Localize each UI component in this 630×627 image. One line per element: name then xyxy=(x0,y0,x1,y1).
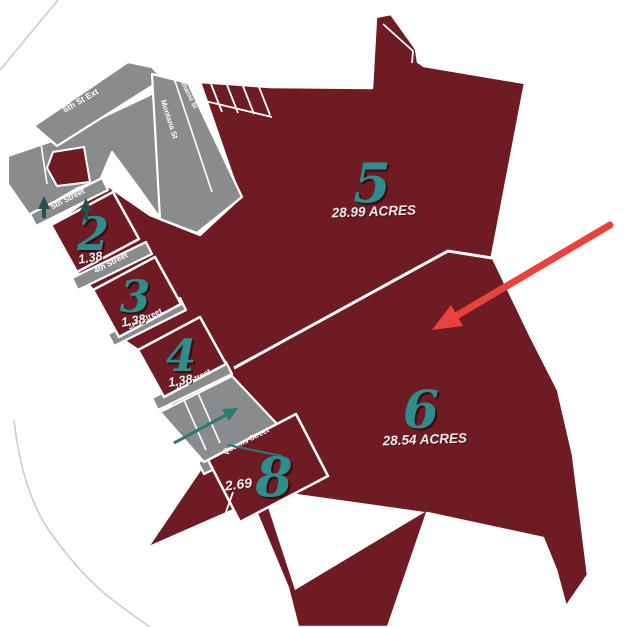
plat-map-canvas: 6th St Ext Treharne St Montana St 5th St… xyxy=(0,0,630,627)
block-inner-parcel xyxy=(47,147,90,186)
boundary-line-top-left xyxy=(0,0,58,70)
boundary-curve-bottom-left xyxy=(14,420,150,627)
parcel-5-area: 28.99 ACRES xyxy=(330,203,416,221)
parcel-6-area: 28.54 ACRES xyxy=(381,431,467,449)
plat-map: 6th St Ext Treharne St Montana St 5th St… xyxy=(0,0,630,627)
